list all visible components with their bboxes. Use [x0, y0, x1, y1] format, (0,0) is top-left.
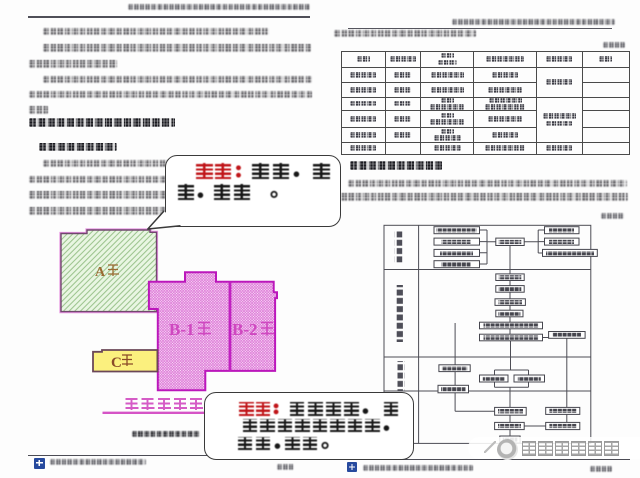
- svg-text:A: A: [95, 265, 106, 280]
- svg-text:B-2: B-2: [232, 320, 258, 339]
- svg-text:B-1: B-1: [169, 320, 195, 339]
- svg-text:C: C: [111, 355, 122, 371]
